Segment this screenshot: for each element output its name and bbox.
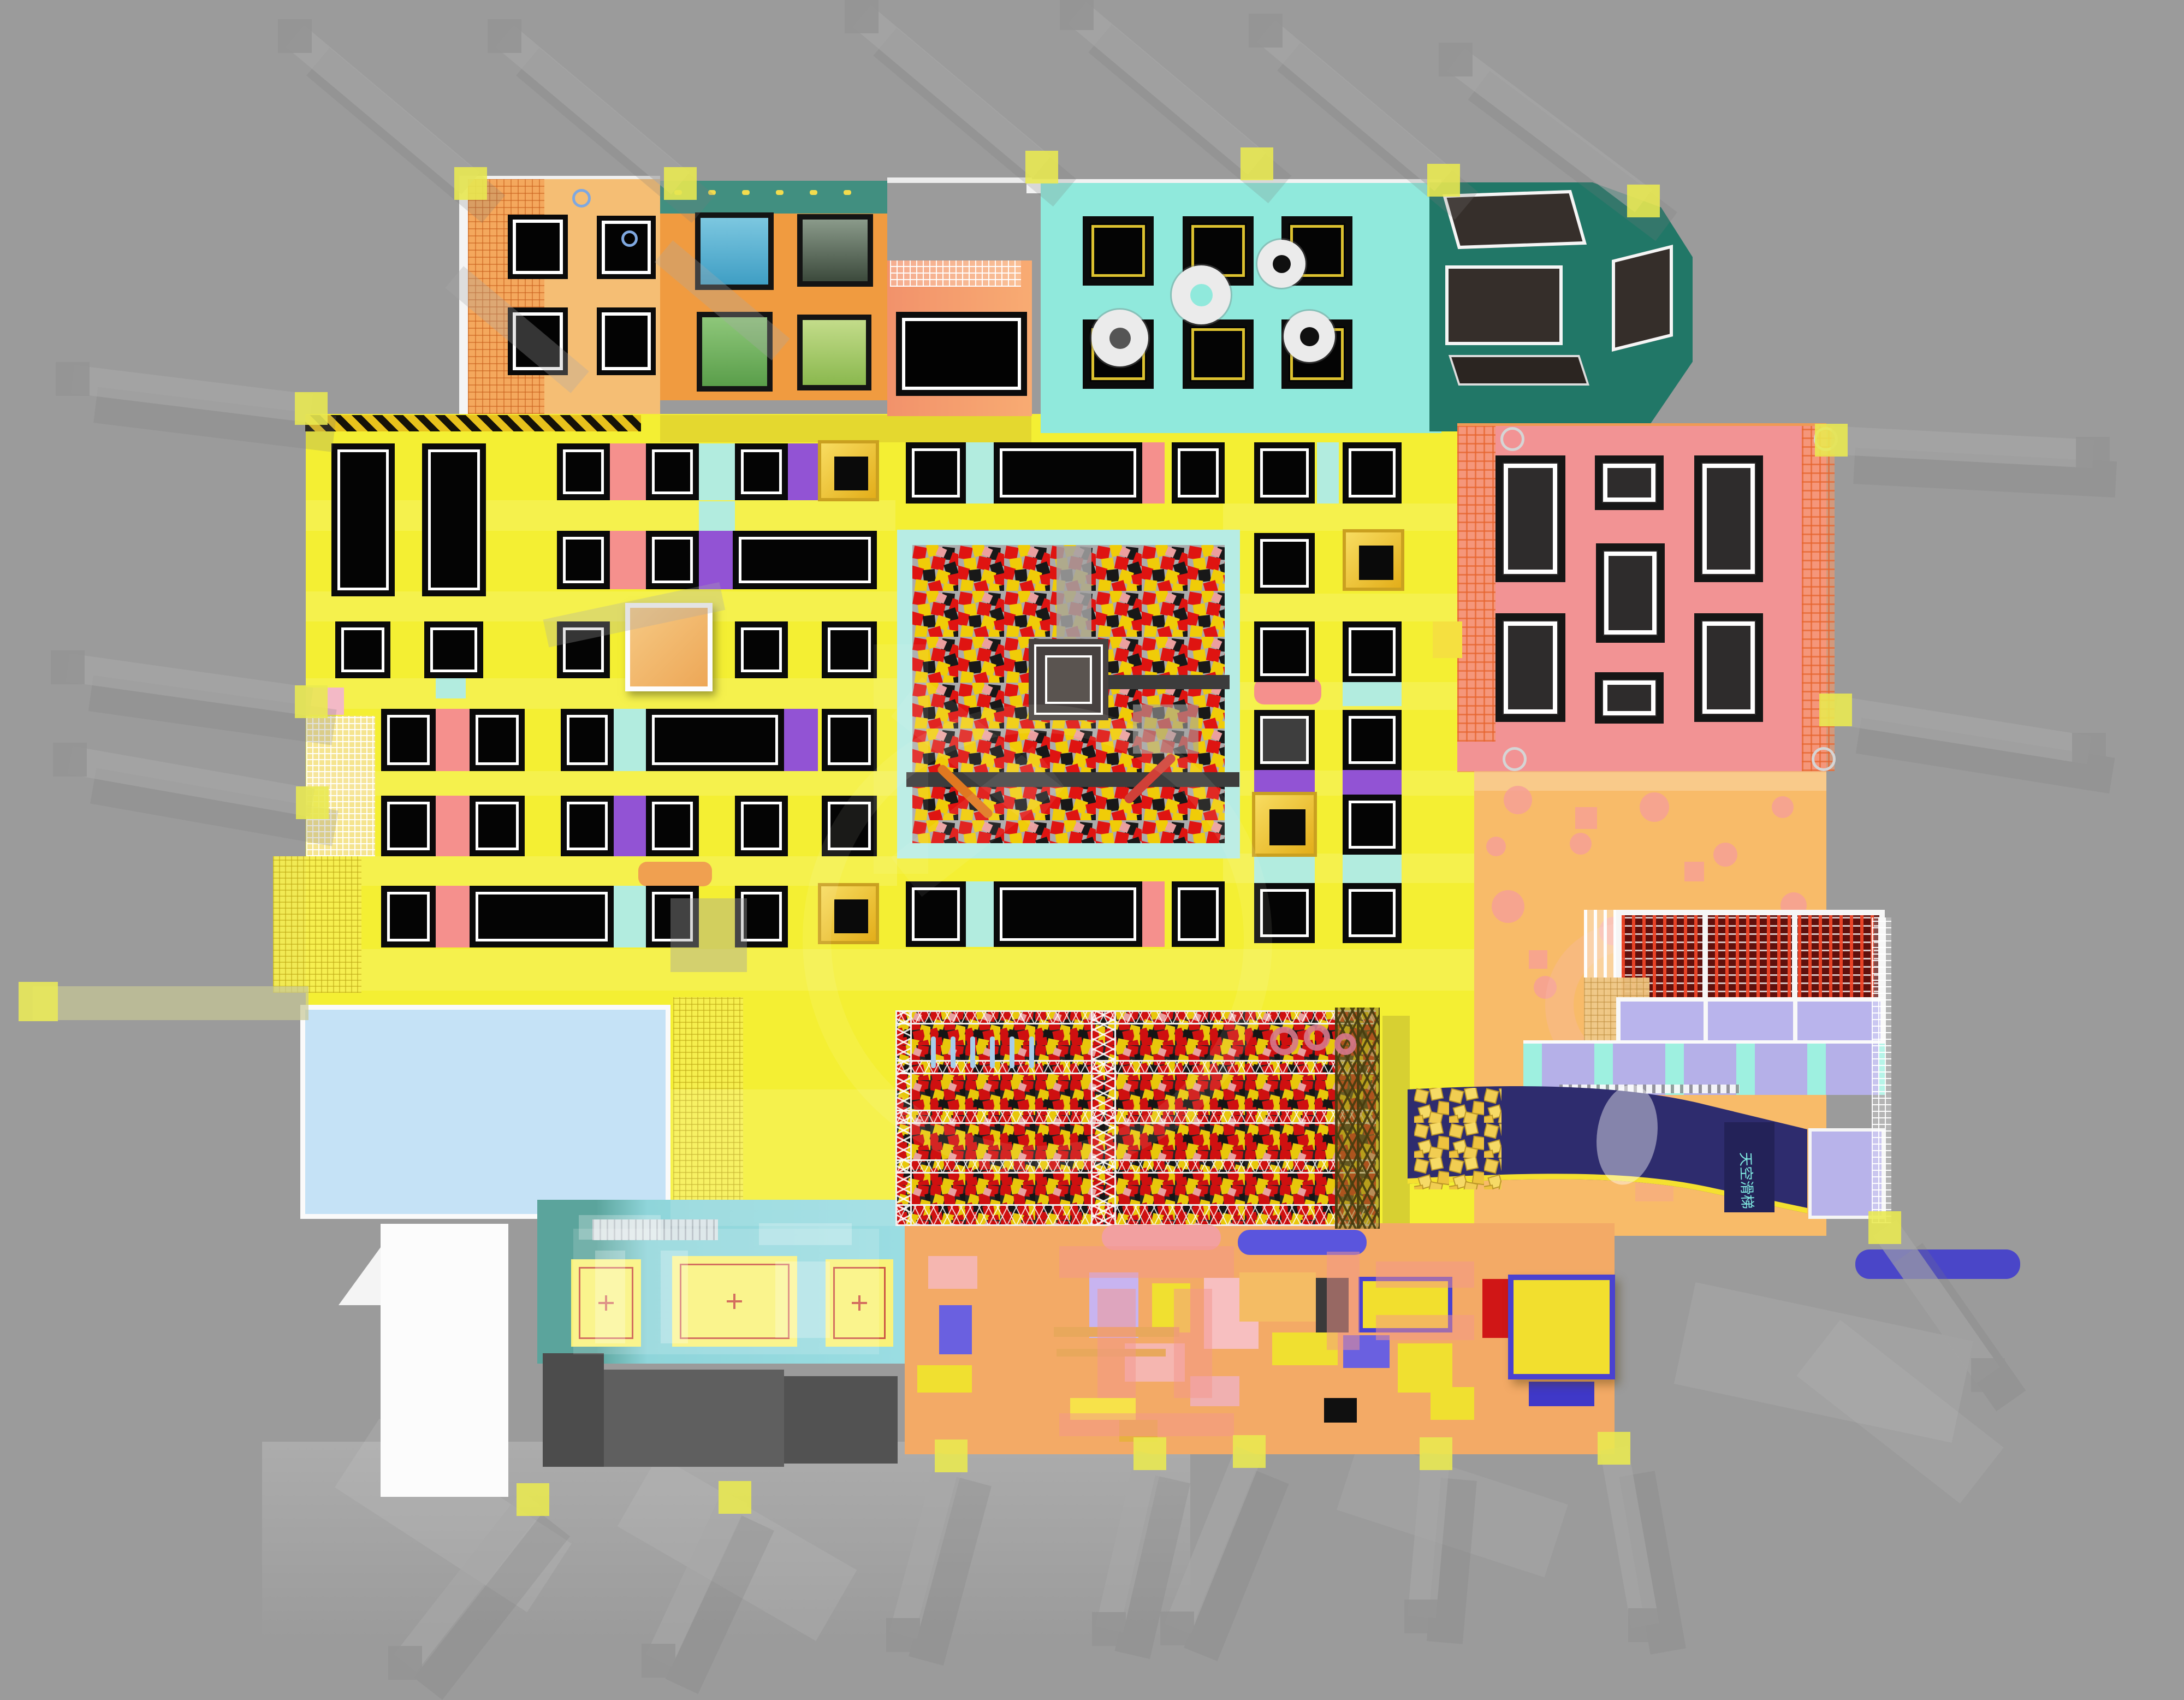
svg-text:天空滑梯: 天空滑梯 xyxy=(1737,1152,1756,1209)
